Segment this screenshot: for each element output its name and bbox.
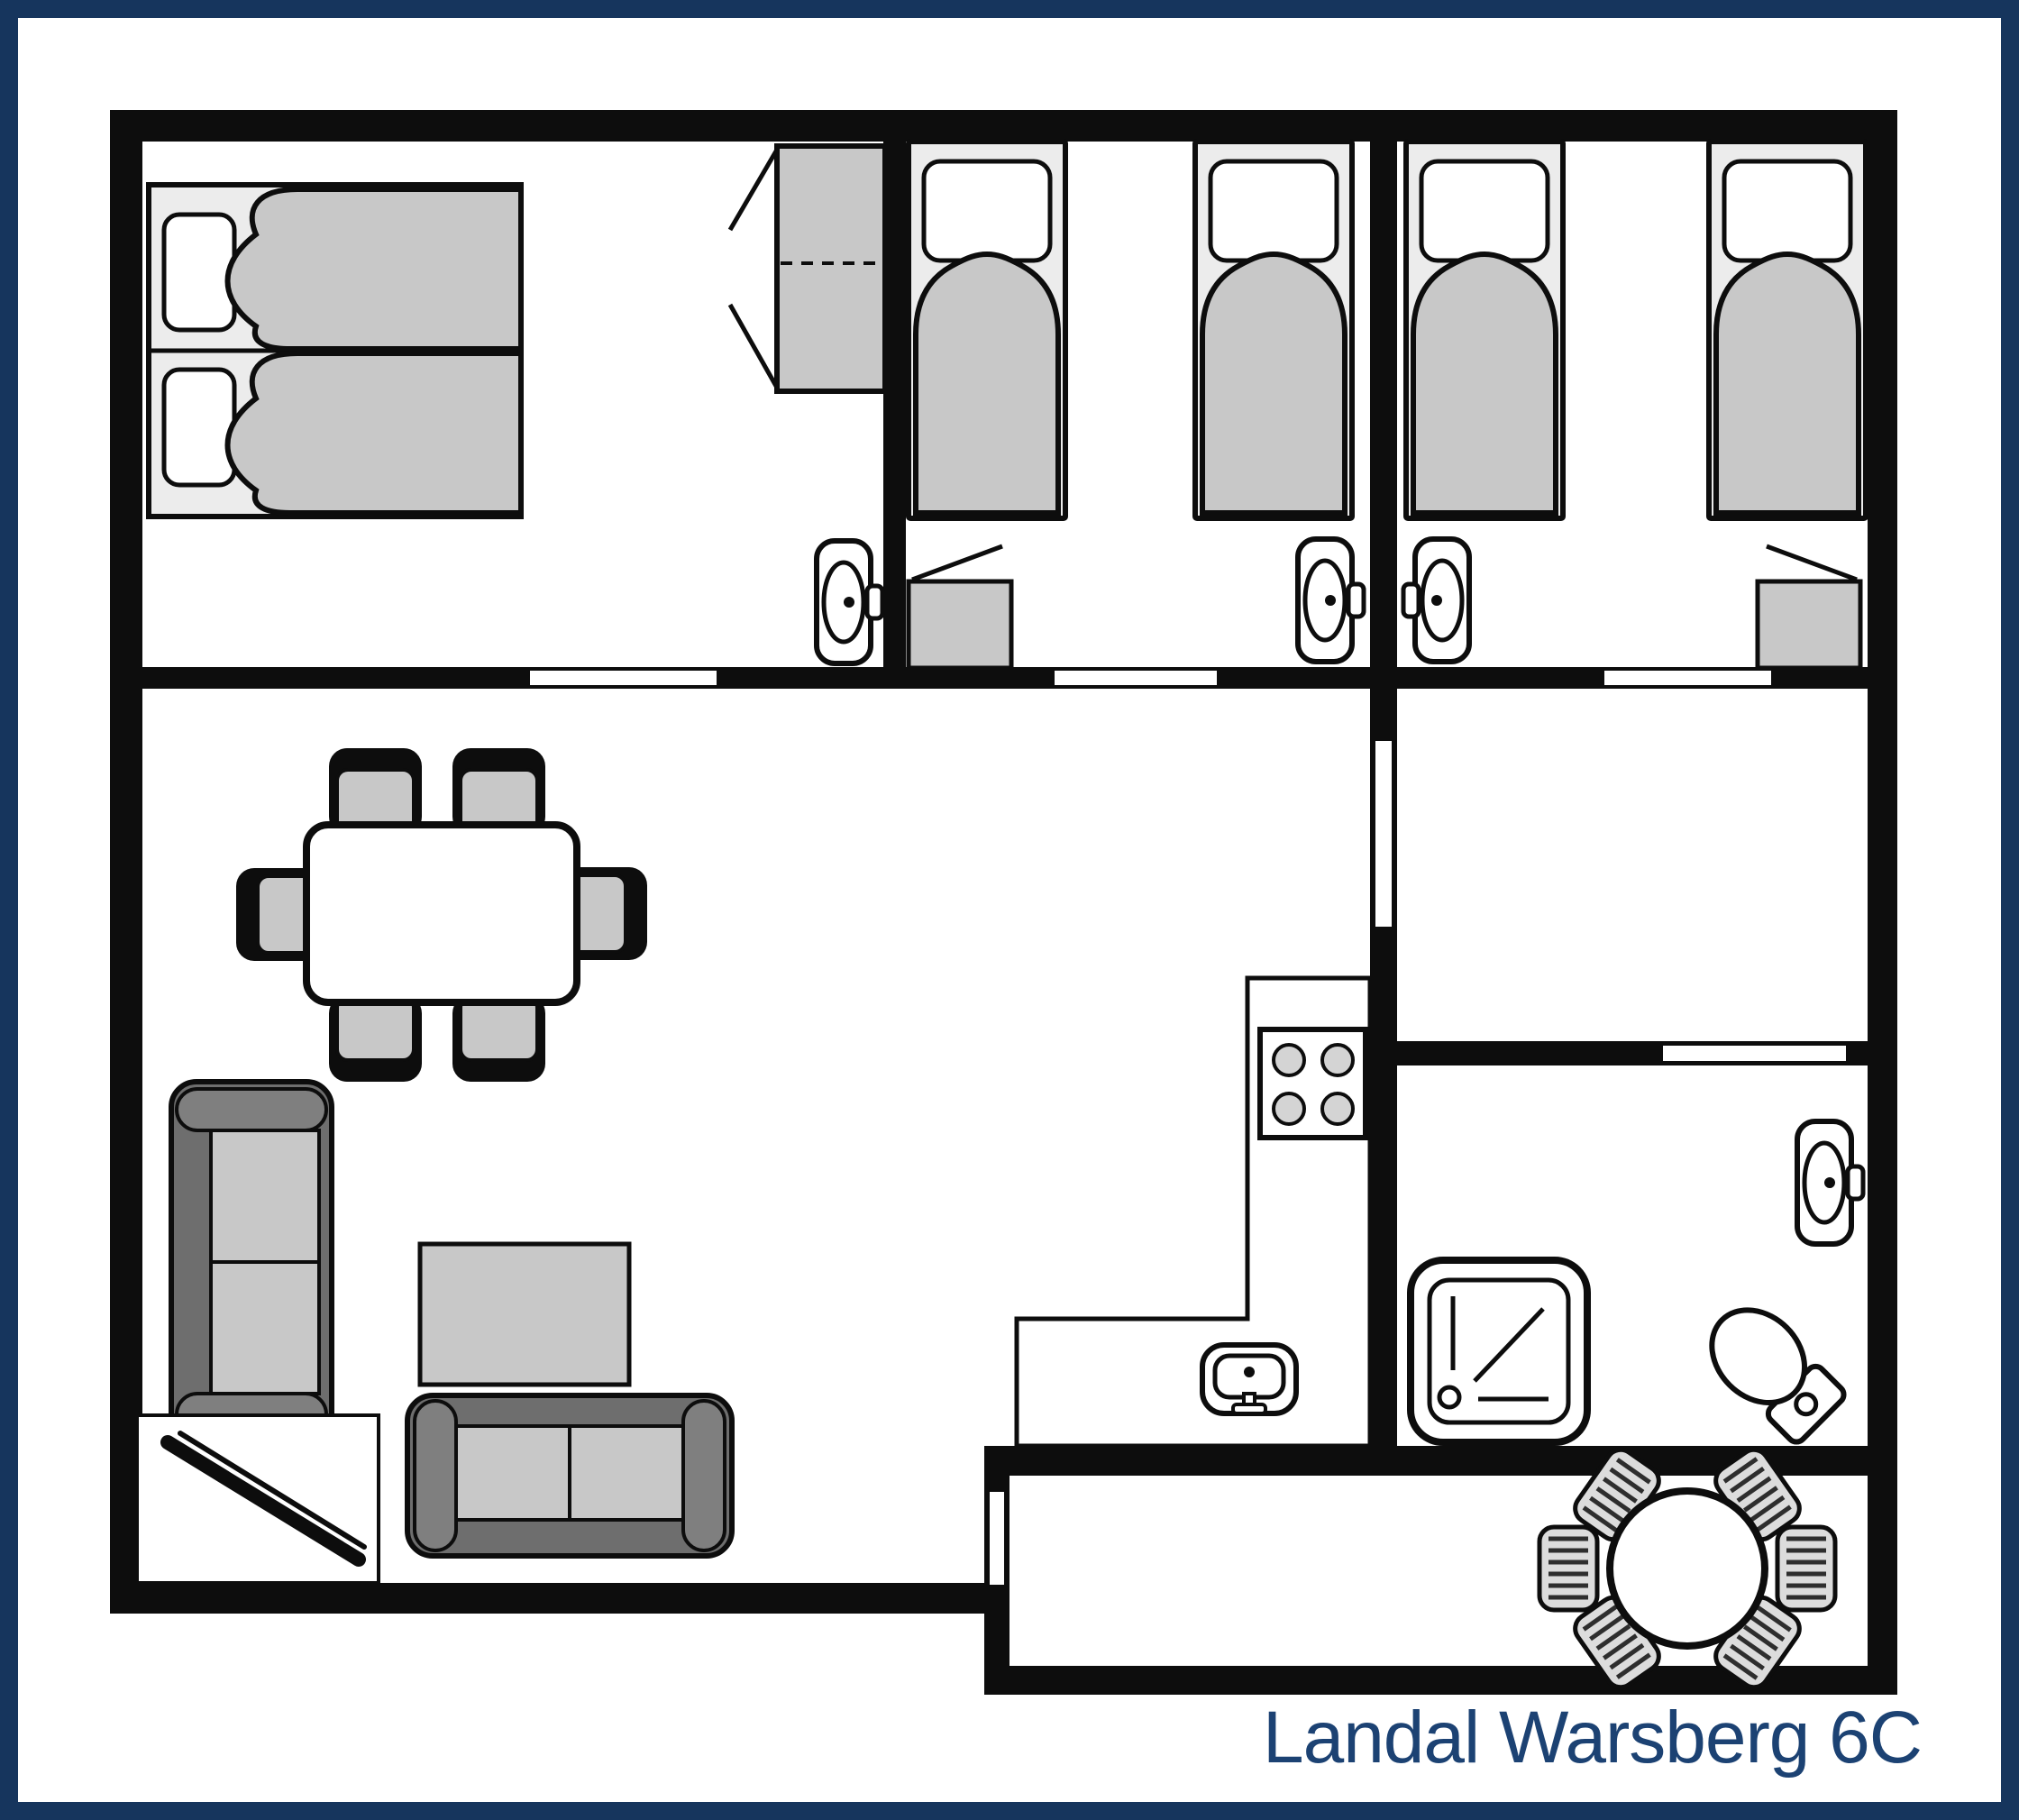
sofa-cushion [211,1262,319,1394]
single-bed [1709,142,1866,518]
single-bed [1195,142,1352,518]
wardrobe [730,146,885,391]
bathroom [1411,1121,1863,1449]
cabinet-door-swing [1767,546,1857,580]
floorplan-drawing [0,0,2019,1820]
wall-outer-left [110,110,142,1614]
door-opening-hall-storage [1375,741,1392,927]
sofa-cushion [456,1426,570,1520]
sofa-2-seat [407,1395,732,1556]
door-opening-bedroom3 [1604,671,1771,685]
wall-living-bottom [110,1583,1009,1614]
kitchen [1017,978,1370,1446]
washbasin [1403,539,1469,662]
bedroom-2 [909,142,1364,668]
burner [1274,1045,1304,1075]
sofa-3-seat [171,1082,332,1442]
door-opening-bathroom [1663,1046,1846,1061]
pillow [164,370,234,485]
wardrobe-door-swing [730,305,777,388]
washbasin [1298,539,1364,662]
kitchen-sink [1202,1345,1296,1413]
sink-tap-base [1233,1404,1265,1413]
sofa-cushion [570,1426,683,1520]
sofa-arm [415,1401,456,1550]
wardrobe-body [777,146,885,391]
terrace-chair [1777,1527,1835,1610]
stove [1260,1029,1366,1138]
terrace-table [1610,1491,1765,1646]
bedroom-3 [1403,142,1866,668]
bedroom-1 [149,146,885,663]
sofa-cushion [211,1130,319,1262]
floorplan-page: Landal Warsberg 6C [0,0,2019,1820]
pillow [164,215,234,330]
shower-drain [1439,1387,1459,1407]
coffee-table [420,1244,629,1385]
washbasin [1797,1121,1863,1244]
shower [1411,1260,1587,1442]
sofa-arm [683,1401,725,1550]
burner [1322,1045,1353,1075]
door-opening-bedroom2 [1055,671,1217,685]
cabinet-door-swing [912,546,1002,580]
living-room [137,748,732,1583]
single-bed [1406,142,1563,518]
dining-table [306,825,577,1002]
sink-drain [1244,1367,1255,1377]
toilet [1694,1292,1851,1450]
wall-outer-right [1868,110,1897,1695]
sofa-arm [177,1089,326,1130]
stove-top [1260,1029,1366,1138]
wardrobe-door-swing [730,150,777,230]
door-opening-terrace [990,1492,1004,1585]
wall-bedrooms-bottom [110,667,1868,689]
cabinet [1758,581,1860,668]
dining-set [236,748,647,1082]
duvet [228,189,522,349]
washbasin [817,541,882,663]
single-bed [909,142,1065,518]
dining-chair [329,995,422,1082]
duvet [228,353,522,513]
entrance [137,1415,379,1583]
cabinet [909,581,1011,668]
door-opening-bedroom1 [530,671,717,685]
burner [1274,1093,1304,1124]
wall-outer-top [110,110,1897,142]
terrace-chair [1539,1527,1597,1610]
terrace [1539,1444,1835,1693]
plan-title: Landal Warsberg 6C [1263,1696,1922,1780]
dining-chair [452,995,545,1082]
burner [1322,1093,1353,1124]
